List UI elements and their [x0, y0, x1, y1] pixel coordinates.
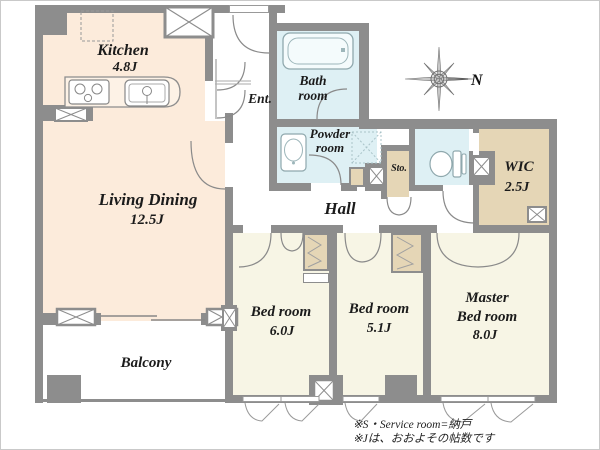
pillar — [37, 7, 67, 35]
bedroom-2-label: Bed room — [349, 301, 409, 318]
footnote-line-2: ※Jは、おおよその帖数です — [353, 432, 494, 446]
compass-rose: N — [405, 47, 484, 111]
wall — [423, 225, 431, 403]
closet-bedroom-1 — [303, 233, 329, 271]
bathroom-label-1: Bath — [299, 74, 326, 89]
wall — [225, 187, 233, 403]
wic-label: WIC — [504, 159, 533, 176]
wic-opening — [473, 133, 479, 155]
bedroom-1-label: Bed room — [251, 304, 311, 321]
window-swing — [245, 403, 279, 421]
toilet-door-arc — [443, 191, 475, 223]
hall-label: Hall — [324, 200, 355, 219]
kitchen-label: Kitchen — [97, 42, 149, 60]
wall — [225, 113, 233, 143]
wall — [359, 23, 369, 129]
floorplan: N — [0, 0, 600, 450]
wall — [549, 119, 557, 403]
room-toilet — [415, 129, 469, 185]
storage-label: Sto. — [391, 163, 407, 174]
bathroom-label-2: room — [298, 89, 327, 104]
living-dining-label: Living Dining — [99, 191, 198, 210]
pillar — [385, 375, 417, 403]
wall — [309, 375, 343, 405]
wall — [269, 183, 311, 191]
wall — [277, 23, 367, 31]
balcony-edge — [43, 399, 229, 402]
wall — [205, 5, 213, 81]
closet-bedroom-1-lower — [303, 273, 329, 283]
wall — [409, 129, 415, 191]
wall — [35, 5, 43, 403]
bedroom-1-size: 6.0J — [270, 324, 295, 339]
utility-box — [349, 167, 365, 187]
entrance-label: Ent. — [248, 92, 272, 107]
bedroom-2-size: 5.1J — [367, 321, 392, 336]
wall — [227, 225, 243, 233]
storage-door-arc — [399, 197, 411, 215]
closet-bedroom-2 — [391, 233, 423, 273]
wic-size: 2.5J — [505, 180, 530, 195]
wall — [365, 163, 387, 191]
master-bedroom-label-1: Master — [465, 290, 508, 307]
living-dining-size: 12.5J — [130, 212, 164, 229]
wall — [221, 305, 237, 331]
storage-door-arc — [387, 197, 399, 215]
front-door-opening — [229, 5, 269, 13]
wall — [43, 105, 93, 121]
compass-north-label: N — [470, 72, 484, 89]
master-bedroom-size: 8.0J — [473, 328, 498, 343]
powder-label-2: room — [316, 141, 344, 155]
wall — [409, 185, 443, 191]
wall — [43, 313, 101, 325]
kitchen-size: 4.8J — [113, 60, 138, 75]
footnote-line-1: ※S・Service room=納戸 — [353, 418, 494, 432]
window-swing — [491, 403, 533, 422]
balcony-label: Balcony — [121, 355, 172, 372]
window-swing — [285, 403, 319, 421]
master-bedroom-label-2: Bed room — [457, 309, 517, 326]
wall — [473, 225, 557, 233]
wall — [359, 119, 557, 129]
footnotes: ※S・Service room=納戸 ※Jは、おおよその帖数です — [353, 418, 494, 446]
